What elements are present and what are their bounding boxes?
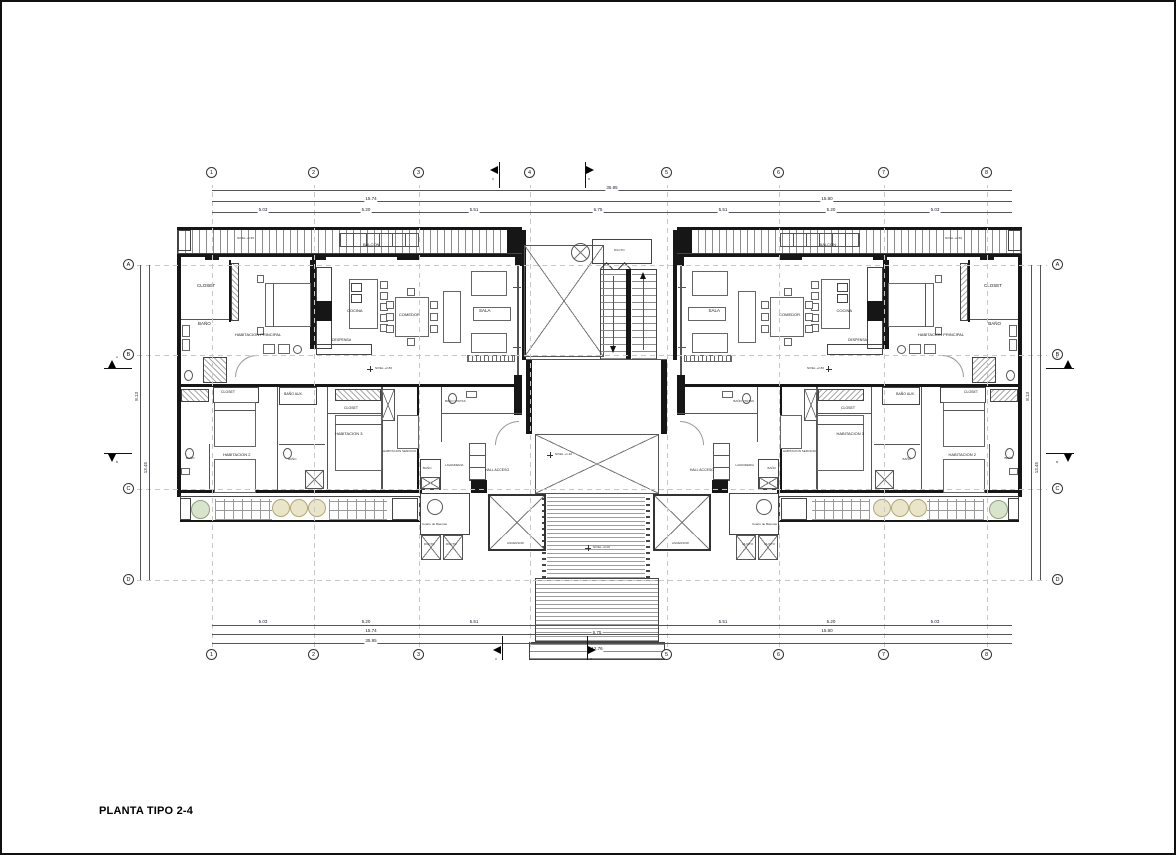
room-label-sala: SALA [708, 309, 720, 314]
room-label-aux-bath: BAÑO AUX. [284, 393, 303, 397]
washer-stack [469, 443, 486, 481]
room-label-comedor: COMEDOR [779, 313, 800, 317]
grid-bubble: 2 [308, 649, 319, 660]
sofa [738, 291, 756, 343]
room-label-bano-visitas: BAÑO VISITAS [733, 400, 754, 403]
bed-pillow-line [817, 424, 864, 425]
stair-spine-wall [626, 269, 631, 360]
sofa [692, 333, 728, 353]
balcony-end-box [1008, 230, 1021, 251]
sink [351, 283, 362, 292]
room-label-balcon: BALCON [820, 243, 836, 247]
duct-shaft [381, 389, 395, 421]
sink [837, 294, 848, 303]
grid-line [987, 185, 988, 647]
room-label-hab3: HABITACION 3 [335, 432, 363, 436]
planter-box [180, 498, 191, 520]
level-note: NIVEL +1.40 [555, 453, 572, 456]
wall [177, 227, 522, 230]
room-label-balcon: BALCON [363, 243, 379, 247]
door-swing [680, 421, 704, 445]
chair [386, 325, 394, 333]
wall [441, 413, 522, 414]
dim-line [149, 265, 150, 580]
wall [279, 444, 325, 445]
section-letter: A [1056, 356, 1058, 359]
section-arrow [493, 646, 501, 654]
dim-line [1040, 265, 1041, 580]
grid-bubble: D [1052, 574, 1063, 585]
grid-bubble: 1 [206, 167, 217, 178]
dim-total: 35.95 [605, 186, 618, 191]
room-label-bano: BAÑO [902, 458, 911, 461]
bed [397, 415, 419, 449]
stove [867, 301, 883, 321]
stove [316, 301, 332, 321]
wall [677, 227, 1022, 230]
shower [759, 477, 778, 489]
balcony-tiles [927, 499, 984, 520]
washer-stack [713, 443, 730, 481]
column [514, 375, 522, 415]
grid-bubble: C [123, 483, 134, 494]
room-label-lavanderia: LAVANDERIA [735, 464, 754, 467]
room-label-bano-visitas: BAÑO VISITAS [445, 400, 466, 403]
stool [811, 292, 819, 300]
chute-box [471, 480, 487, 493]
section-marker-line [499, 162, 500, 188]
wall [1018, 254, 1022, 497]
grid-line [212, 185, 213, 647]
level-marker [547, 452, 553, 458]
chair [407, 288, 415, 296]
grid-bubble: A [1052, 259, 1063, 270]
parasol [891, 499, 909, 517]
shower [972, 357, 996, 383]
grid-bubble: 1 [206, 649, 217, 660]
section-arrow [588, 646, 596, 654]
room-label-hab2: HABITACION 2 [949, 453, 977, 457]
pantry-counter [316, 344, 372, 355]
section-letter: B [1056, 461, 1058, 464]
grid-line [419, 185, 420, 647]
section-arrow [108, 454, 116, 462]
grid-bubble: C [1052, 483, 1063, 494]
tree [272, 499, 290, 517]
dim-segment: 5.51 [718, 620, 729, 625]
vanity [1009, 339, 1017, 351]
grid-line [137, 489, 1047, 490]
balcony-tiles [329, 499, 387, 520]
balcony-tiles [215, 499, 272, 520]
door-swing [495, 421, 519, 445]
tree [909, 499, 927, 517]
stair-treads [632, 270, 656, 359]
nightstand [257, 275, 264, 283]
wall [677, 413, 758, 414]
wall [177, 254, 522, 257]
grid-bubble: D [123, 574, 134, 585]
wall [874, 444, 920, 445]
chair [430, 313, 438, 321]
door-swing [235, 355, 257, 377]
dim-vertical: 8.13 [1026, 392, 1031, 401]
chute-box [712, 480, 728, 493]
drawing-title: PLANTA TIPO 2-4 [99, 805, 193, 817]
stair-arrow [643, 278, 644, 350]
balcony-tiles [812, 499, 870, 520]
wall [677, 254, 1022, 257]
bed-pillow-line [273, 283, 274, 327]
bed [214, 402, 256, 447]
shaft-column [507, 229, 522, 253]
nightstand [935, 275, 942, 283]
parasol [290, 499, 308, 517]
grid-line [314, 185, 315, 647]
bed [943, 459, 985, 493]
mullion [513, 287, 521, 288]
room-label-hall-acceso: HALL ACCESO [690, 469, 714, 473]
column [677, 375, 685, 415]
closet-hatch [990, 389, 1018, 402]
room-label-closet: CLOSET [841, 407, 855, 411]
bed [214, 459, 256, 493]
apartment-left: BALCON NIVEL +2.65 [177, 227, 522, 567]
room-label-bano: BAÑO [1004, 457, 1013, 460]
room-label-comedor: COMEDOR [399, 313, 420, 317]
apartment-right: BALCON NIVEL +2.65 [677, 227, 1022, 567]
section-letter: D [590, 658, 592, 661]
chair [924, 344, 936, 354]
stool [380, 281, 388, 289]
tree [191, 500, 210, 519]
closet-hatch [818, 389, 864, 401]
wall [817, 413, 872, 414]
level-note: NIVEL +2.65 [945, 237, 962, 240]
coffee-table [688, 307, 726, 321]
room-label-ducto: DUCTO [424, 543, 435, 546]
room-label-cuarto-basuras: Cuarto de Basuras [422, 523, 447, 526]
dim-line [1031, 265, 1032, 580]
section-arrow [586, 166, 594, 174]
wall [968, 260, 970, 322]
bed [888, 283, 934, 327]
section-marker-line [1046, 368, 1074, 369]
grid-bubble: 7 [878, 649, 889, 660]
chair [761, 301, 769, 309]
floor-drain [427, 499, 443, 515]
level-marker [367, 366, 373, 372]
dim-segment: 5.51 [718, 208, 729, 213]
dim-segment: 5.03 [930, 208, 941, 213]
dim-segment: 5.20 [361, 208, 372, 213]
level-note: NIVEL +2.80 [807, 367, 824, 370]
chair [430, 325, 438, 333]
grid-bubble: 2 [308, 167, 319, 178]
dim-segment: 5.20 [361, 620, 372, 625]
dining-table [395, 297, 429, 337]
room-label-hab-servicio: HABITACION SERVICIO [383, 450, 416, 453]
grid-line [530, 185, 531, 647]
mullion [513, 347, 521, 348]
section-letter: B [116, 461, 118, 464]
grid-bubble: B [123, 349, 134, 360]
chair [761, 313, 769, 321]
room-label-ducto: DUCTO [446, 543, 457, 546]
room-label-hab3: HABITACION 3 [837, 432, 865, 436]
dim-total: 35.95 [364, 639, 377, 644]
dim-line [212, 634, 1012, 635]
vent-grille [467, 355, 515, 362]
trash-room [420, 493, 470, 535]
room-label-closet: CLOSET [221, 391, 235, 395]
chair [761, 325, 769, 333]
duct-shaft [736, 535, 756, 560]
stair-arrow-head [610, 346, 616, 353]
duct-shaft [804, 389, 818, 421]
grid-bubble: 6 [773, 649, 784, 660]
duct-shaft [421, 535, 441, 560]
room-label-cuarto-basuras: Cuarto de Basuras [752, 523, 777, 526]
dim-half: 15.80 [820, 197, 833, 202]
grid-line [884, 185, 885, 647]
wall [277, 387, 278, 490]
chair [407, 338, 415, 346]
room-label-bano: BAÑO [288, 458, 297, 461]
room-label-aux-bath: BAÑO AUX. [896, 393, 915, 397]
room-label-hab-principal: HABITACION PRINCIPAL [235, 333, 281, 337]
stair-arrow [613, 276, 614, 348]
vanity [182, 339, 190, 351]
grid-bubble: 7 [878, 167, 889, 178]
chair [278, 344, 290, 354]
dim-line [212, 212, 1012, 213]
room-label-ducto: DUCTO [742, 543, 753, 546]
dim-half: 15.80 [820, 629, 833, 634]
room-label-closet: CLOSET [344, 407, 358, 411]
floor-drain [756, 499, 772, 515]
door-swing [942, 355, 964, 377]
mullion [678, 347, 686, 348]
wall [921, 387, 922, 490]
section-arrow [1064, 454, 1072, 462]
core-wall [673, 230, 677, 360]
room-label-bano: BAÑO [423, 467, 432, 470]
dim-segment: 6.75 [593, 208, 604, 213]
room-label-cocina: COCINA [347, 309, 363, 313]
bed-pillow-line [335, 424, 382, 425]
room-label-bano: BAÑO [767, 467, 776, 470]
floor-plan-sheet: BALCON NIVEL +2.65 [0, 0, 1176, 855]
bed-pillow-line [943, 410, 985, 411]
chair [805, 325, 813, 333]
balcony-end-box [178, 230, 191, 251]
stool [380, 292, 388, 300]
room-label-closet: CLOSET [964, 391, 978, 395]
section-arrow [490, 166, 498, 174]
elevator-label: ASCENSOR [672, 542, 689, 545]
tree [873, 499, 891, 517]
side-table [897, 345, 906, 354]
stool [811, 281, 819, 289]
section-arrow [1064, 360, 1072, 368]
level-marker [585, 545, 591, 551]
wall [327, 413, 382, 414]
sink [181, 468, 190, 475]
wall [181, 319, 229, 320]
section-letter: C [492, 178, 494, 181]
wall [180, 520, 420, 522]
sofa [471, 333, 507, 353]
shower [421, 477, 440, 489]
dim-line [212, 643, 1012, 644]
planter-box [392, 498, 418, 520]
room-label-bano: BAÑO [186, 457, 195, 460]
dining-table [770, 297, 804, 337]
trash-room [729, 493, 779, 535]
sofa [692, 271, 728, 296]
level-note: NIVEL +2.65 [237, 237, 254, 240]
wall [177, 254, 181, 497]
stair-arrow-head [640, 272, 646, 279]
dim-line [212, 625, 1012, 626]
room-label-cocina: COCINA [836, 309, 852, 313]
wall [989, 444, 990, 490]
stair-baluster [646, 494, 650, 578]
level-marker [826, 366, 832, 372]
extractor-fan [571, 243, 590, 262]
grid-bubble: 3 [413, 167, 424, 178]
entry-stair-run [547, 494, 645, 578]
closet-hatch [181, 389, 209, 402]
dim-segment: 5.03 [930, 620, 941, 625]
section-letter: D [588, 178, 590, 181]
sink [722, 391, 733, 398]
section-letter: C [495, 658, 497, 661]
duct-shaft [443, 535, 463, 560]
chair [784, 338, 792, 346]
window-glazing [517, 260, 519, 382]
planter-box [1008, 498, 1019, 520]
closet-hatch [335, 389, 381, 401]
chair [263, 344, 275, 354]
dim-segment: 5.03 [258, 208, 269, 213]
grid-bubble: A [123, 259, 134, 270]
vanity [1009, 325, 1017, 337]
entry-landing [535, 434, 659, 494]
room-label-hab-servicio: HABITACION SERVICIO [783, 450, 816, 453]
grid-bubble: 5 [661, 167, 672, 178]
chair [805, 313, 813, 321]
wall [779, 520, 1019, 522]
duct-shaft [758, 535, 778, 560]
wall [441, 387, 442, 442]
room-label-hab-principal: HABITACION PRINCIPAL [918, 333, 964, 337]
core-opening-line [526, 359, 667, 360]
wall [757, 387, 758, 442]
bed [780, 415, 802, 449]
bed-pillow-line [925, 283, 926, 327]
section-marker-line [502, 636, 503, 660]
chair [386, 301, 394, 309]
mullion [678, 287, 686, 288]
dim-segment: 5.03 [258, 620, 269, 625]
grid-line [137, 580, 1047, 581]
sink [837, 283, 848, 292]
toilet [1006, 370, 1015, 381]
grid-bubble: 8 [981, 649, 992, 660]
vent-grille [684, 355, 732, 362]
room-label-despensa: DESPENSA [332, 339, 351, 343]
room-label-hab2: HABITACION 2 [223, 453, 251, 457]
room-label-sala: SALA [479, 309, 491, 314]
dim-vertical: 13.45 [144, 462, 149, 473]
window-glazing [680, 260, 682, 382]
section-arrow [108, 360, 116, 368]
sofa [471, 271, 507, 296]
dim-segment: 5.20 [826, 620, 837, 625]
grid-line [779, 185, 780, 647]
wardrobe-hatch [960, 263, 968, 321]
toilet [184, 370, 193, 381]
room-label-bano: BAÑO [198, 322, 211, 327]
planter-box [781, 498, 807, 520]
wall [327, 387, 328, 490]
bed-pillow-line [214, 410, 256, 411]
sink [466, 391, 477, 398]
room-label-despensa: DESPENSA [848, 339, 867, 343]
sink [1009, 468, 1018, 475]
grid-bubble: 3 [413, 649, 424, 660]
room-label-bano: BAÑO [988, 322, 1001, 327]
grid-line [667, 185, 668, 647]
chair [386, 313, 394, 321]
vanity [182, 325, 190, 337]
grid-line [137, 355, 1047, 356]
bed [943, 402, 985, 447]
dim-vertical: 13.45 [1035, 462, 1040, 473]
elevator-label: ASCENSOR [507, 542, 524, 545]
sofa [443, 291, 461, 343]
dim-half: 15.74 [364, 629, 377, 634]
dim-line [140, 265, 141, 580]
corridor-wall [526, 360, 532, 434]
shaft-column [677, 229, 692, 253]
grid-bubble: 4 [524, 167, 535, 178]
wall [209, 444, 210, 490]
chair [909, 344, 921, 354]
section-letter: A [116, 356, 118, 359]
column [397, 254, 419, 260]
chair [430, 301, 438, 309]
tree [989, 500, 1008, 519]
column [780, 254, 802, 260]
room-label-ducto: DUCTO [764, 543, 775, 546]
wall [970, 319, 1018, 320]
closet-box [213, 387, 259, 403]
dim-segment: 5.51 [469, 208, 480, 213]
level-note: NIVEL +0.00 [593, 546, 610, 549]
grid-bubble: 6 [773, 167, 784, 178]
shower [203, 357, 227, 383]
dim-segment: 5.51 [469, 620, 480, 625]
side-table [293, 345, 302, 354]
dim-line [212, 201, 1012, 202]
wall [871, 387, 872, 490]
dim-vertical: 8.13 [135, 392, 140, 401]
grid-line [137, 265, 1047, 266]
sink [351, 294, 362, 303]
